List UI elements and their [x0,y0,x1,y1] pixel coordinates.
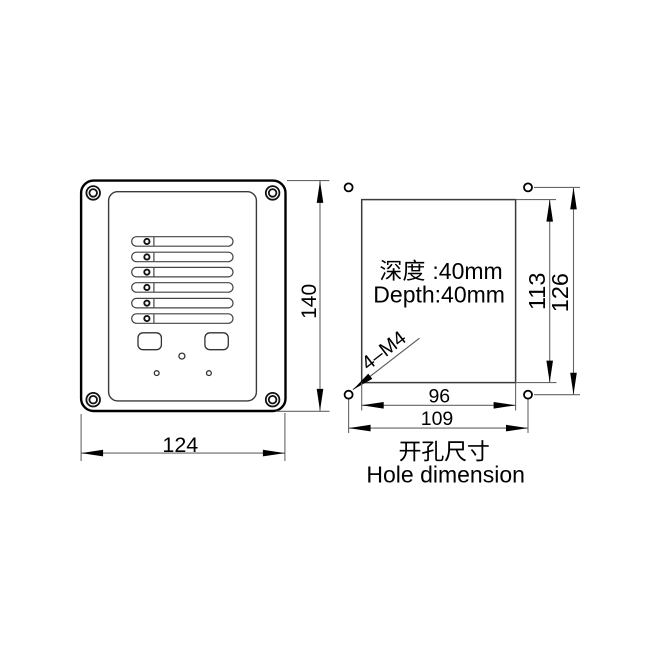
svg-text:126: 126 [547,273,573,312]
svg-text:Hole dimension: Hole dimension [366,462,525,488]
svg-text:140: 140 [298,284,321,319]
svg-text:Depth:40mm: Depth:40mm [373,282,505,308]
svg-text:96: 96 [428,385,450,407]
svg-text:124: 124 [162,433,198,457]
svg-text::40mm: :40mm [432,258,502,284]
svg-text:109: 109 [421,408,454,430]
svg-text:113: 113 [524,273,550,310]
